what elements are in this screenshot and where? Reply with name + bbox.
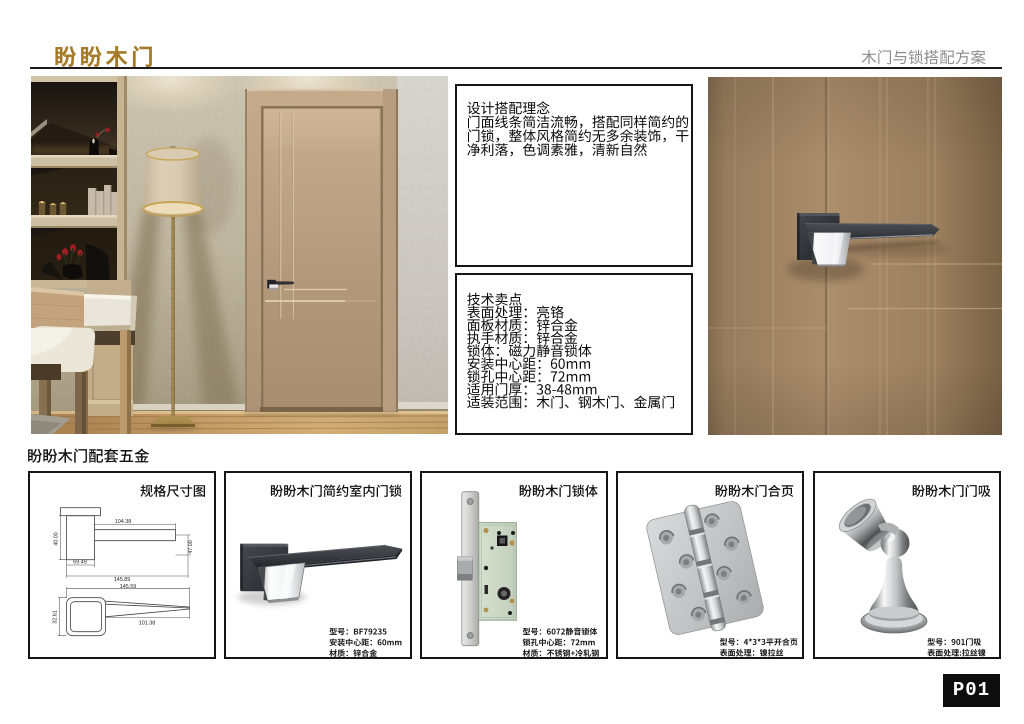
svg-text:47.00: 47.00 xyxy=(188,541,194,555)
svg-text:40.00: 40.00 xyxy=(53,533,59,547)
svg-text:101.38: 101.38 xyxy=(138,621,155,627)
svg-text:32.61: 32.61 xyxy=(52,611,58,625)
svg-text:145.89: 145.89 xyxy=(113,577,130,583)
svg-text:104.38: 104.38 xyxy=(114,519,131,525)
svg-text:69.49: 69.49 xyxy=(73,560,87,566)
svg-text:145.59: 145.59 xyxy=(119,584,136,590)
